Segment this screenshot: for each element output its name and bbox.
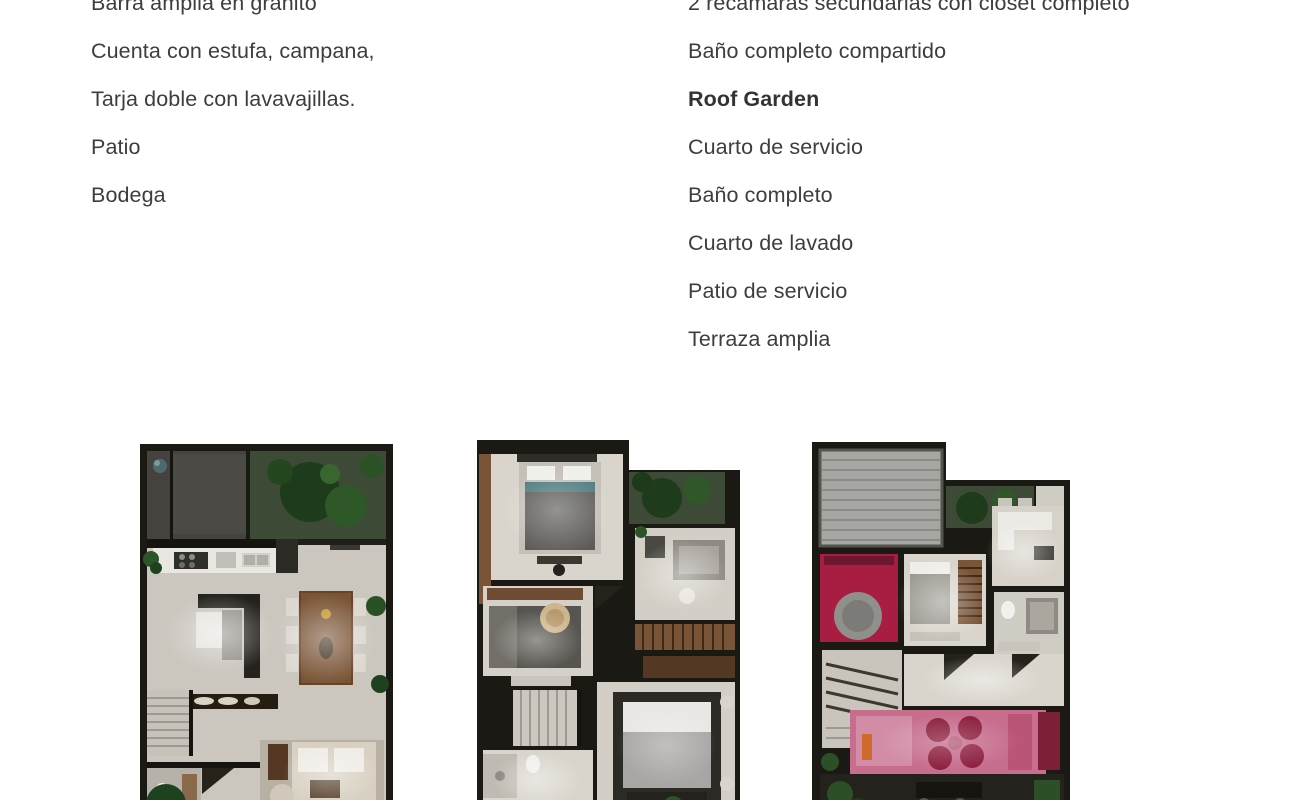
feature-item: Bodega xyxy=(91,171,375,219)
red-room xyxy=(820,554,898,642)
floorplan-ground-svg xyxy=(140,444,393,800)
floorplan-roof-image xyxy=(812,442,1070,800)
feature-item: Cuarto de servicio xyxy=(688,123,1130,171)
feature-item: Baño completo compartido xyxy=(688,27,1130,75)
brochure-page: Barra amplia en granito Cuenta con estuf… xyxy=(0,0,1300,800)
features-left-column: Barra amplia en granito Cuenta con estuf… xyxy=(91,0,375,219)
staircase xyxy=(147,690,193,756)
garden-area xyxy=(629,472,725,524)
feature-item: Barra amplia en granito xyxy=(91,0,375,27)
garden-area xyxy=(250,451,386,539)
service-bathroom xyxy=(994,592,1064,654)
plant xyxy=(366,596,386,616)
floorplan-ground-image xyxy=(140,444,393,800)
feature-item: Cuarto de lavado xyxy=(688,219,1130,267)
kitchen-counter xyxy=(147,539,298,573)
floorplan-upper-image xyxy=(477,440,740,800)
floorplan-upper-svg xyxy=(477,440,740,800)
floorplan-roof-svg xyxy=(812,442,1070,800)
feature-item: Patio de servicio xyxy=(688,267,1130,315)
feature-item: Cuenta con estufa, campana, xyxy=(91,27,375,75)
pergola-roof xyxy=(820,450,942,546)
feature-item: Tarja doble con lavavajillas. xyxy=(91,75,375,123)
feature-item: Terraza amplia xyxy=(688,315,1130,363)
feature-item: 2 recámaras secundarias con closet compl… xyxy=(688,0,1130,27)
covered-patio-area xyxy=(147,451,246,539)
plant xyxy=(371,675,389,693)
feature-item: Patio xyxy=(91,123,375,171)
features-right-column: 2 recámaras secundarias con closet compl… xyxy=(688,0,1130,363)
staircase xyxy=(513,690,582,746)
feature-item: Baño completo xyxy=(688,171,1130,219)
feature-item-roof-garden: Roof Garden xyxy=(688,75,1130,123)
